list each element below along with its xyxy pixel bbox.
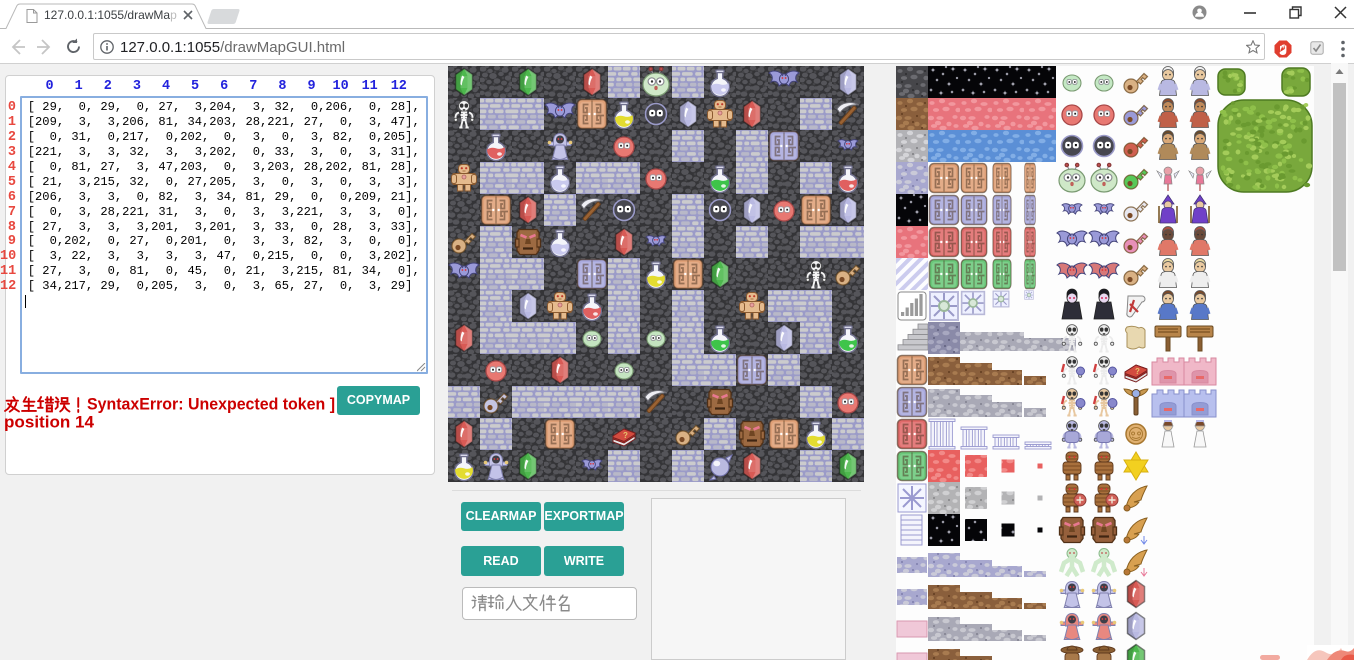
svg-text:position 14: position 14 — [4, 414, 95, 432]
svg-text:SyntaxError: Unexpected token: SyntaxError: Unexpected token ] — [87, 396, 335, 414]
